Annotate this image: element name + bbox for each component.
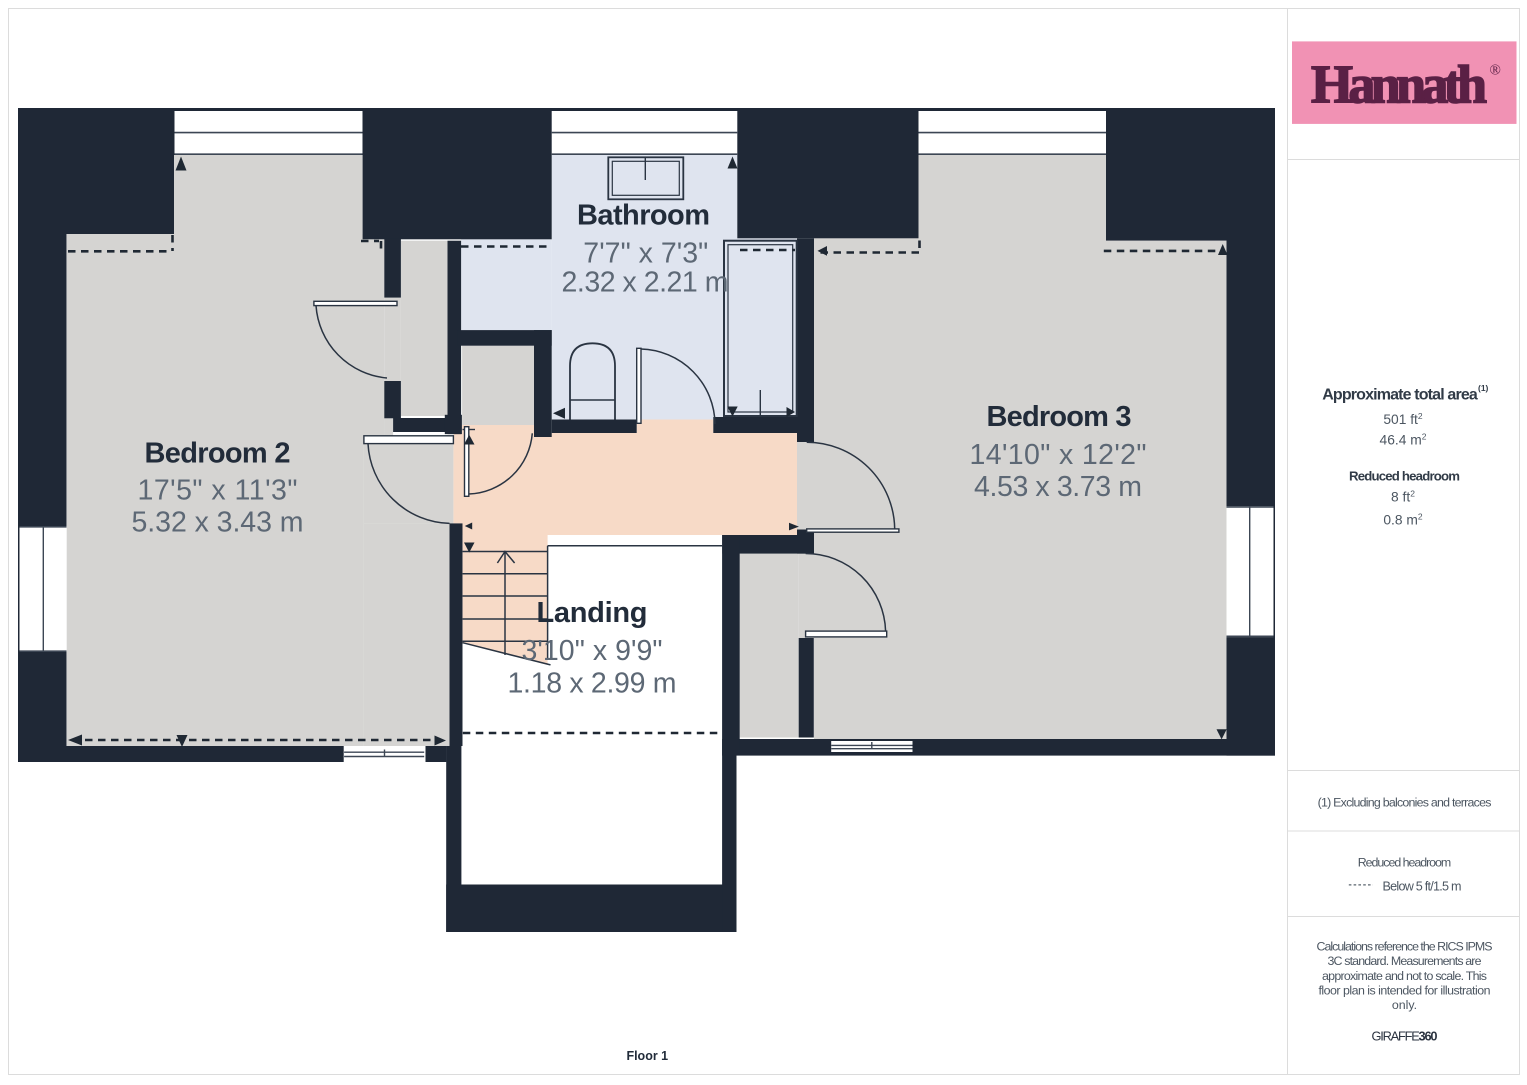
svg-text:Below 5 ft/1.5 m: Below 5 ft/1.5 m (1383, 879, 1462, 893)
svg-text:Landing: Landing (537, 597, 648, 629)
svg-text:8 ft2: 8 ft2 (1391, 489, 1415, 505)
svg-text:Reduced headroom: Reduced headroom (1349, 468, 1460, 483)
svg-text:Reduced headroom: Reduced headroom (1358, 855, 1452, 869)
svg-text:floor plan is intended for ill: floor plan is intended for illustration (1319, 983, 1491, 997)
svg-text:2.32 x 2.21 m: 2.32 x 2.21 m (562, 267, 729, 299)
svg-text:Calculations reference the RIC: Calculations reference the RICS IPMS (1317, 940, 1493, 954)
svg-text:Floor 1: Floor 1 (626, 1049, 668, 1063)
svg-text:7'7" x 7'3": 7'7" x 7'3" (583, 238, 708, 270)
svg-text:17'5" x 11'3": 17'5" x 11'3" (138, 475, 298, 507)
svg-text:approximate and not to scale.: approximate and not to scale. This (1322, 969, 1487, 983)
svg-text:®: ® (1490, 63, 1501, 79)
svg-text:3'10" x 9'9": 3'10" x 9'9" (522, 635, 663, 667)
svg-text:46.4 m2: 46.4 m2 (1380, 431, 1427, 447)
svg-text:Approximate total area: Approximate total area (1322, 386, 1478, 403)
svg-text:501 ft2: 501 ft2 (1383, 411, 1423, 427)
svg-text:Bedroom 3: Bedroom 3 (987, 401, 1132, 433)
svg-text:14'10" x 12'2": 14'10" x 12'2" (970, 439, 1147, 471)
svg-text:GIRAFFE360: GIRAFFE360 (1372, 1029, 1438, 1044)
svg-text:4.53 x 3.73 m: 4.53 x 3.73 m (974, 471, 1142, 503)
svg-text:Hannath: Hannath (1311, 54, 1487, 114)
svg-text:5.32 x 3.43 m: 5.32 x 3.43 m (132, 507, 304, 539)
svg-text:1.18 x 2.99 m: 1.18 x 2.99 m (508, 668, 677, 700)
svg-text:only.: only. (1392, 998, 1417, 1012)
svg-text:0.8 m2: 0.8 m2 (1383, 511, 1423, 527)
svg-text:(1): (1) (1478, 383, 1489, 393)
svg-text:3C standard. Measurements are: 3C standard. Measurements are (1328, 954, 1482, 968)
svg-text:Bedroom 2: Bedroom 2 (145, 438, 291, 470)
svg-text:(1) Excluding balconies and te: (1) Excluding balconies and terraces (1318, 796, 1492, 810)
svg-text:Bathroom: Bathroom (577, 200, 710, 232)
